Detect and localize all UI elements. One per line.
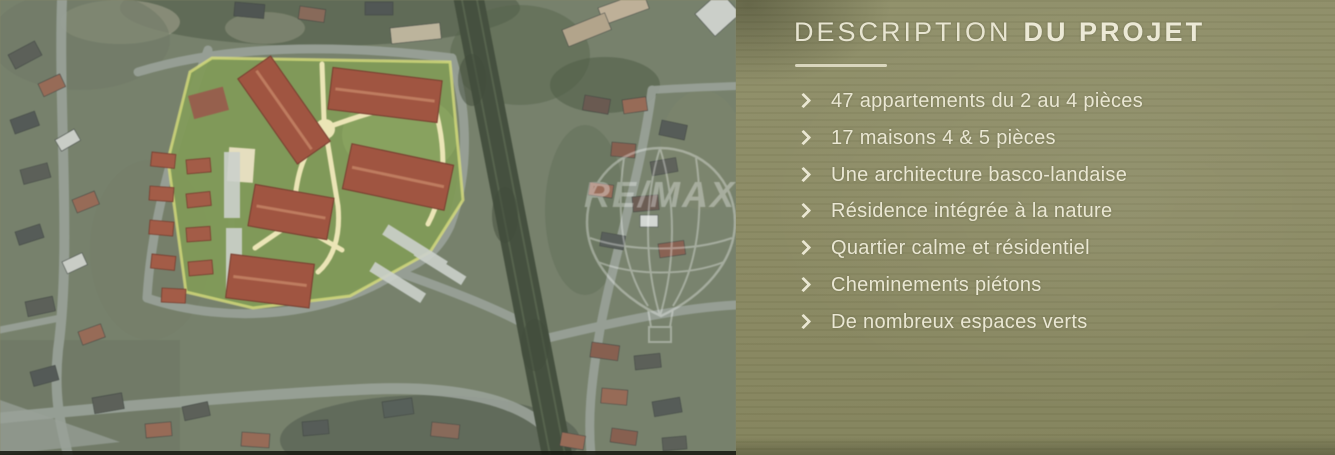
page-title: DESCRIPTIONDU PROJET (794, 18, 1205, 48)
list-item: 17 maisons 4 & 5 pièces (798, 126, 1143, 163)
remax-watermark-text: RE/MAX (584, 174, 736, 215)
chevron-right-icon (798, 163, 831, 180)
title-underline (795, 64, 887, 67)
aerial-map-graphic: RE/MAX (0, 0, 736, 455)
bottom-edge (0, 451, 736, 455)
chevron-right-icon (798, 89, 831, 106)
feature-text: 17 maisons 4 & 5 pièces (831, 126, 1056, 150)
aerial-photo: RE/MAX (0, 0, 736, 455)
list-item: Cheminements piétons (798, 273, 1143, 310)
title-bold: DU PROJET (1024, 17, 1206, 47)
feature-text: Quartier calme et résidentiel (831, 236, 1090, 260)
chevron-right-icon (798, 236, 831, 253)
chevron-right-icon (798, 310, 831, 327)
chevron-right-icon (798, 199, 831, 216)
project-flyer: RE/MAX DESCRIPTIONDU PROJET 47 apparteme… (0, 0, 1335, 455)
title-regular: DESCRIPTION (794, 17, 1012, 47)
chevron-right-icon (798, 126, 831, 143)
list-item: Quartier calme et résidentiel (798, 236, 1143, 273)
list-item: De nombreux espaces verts (798, 310, 1143, 347)
feature-text: 47 appartements du 2 au 4 pièces (831, 89, 1143, 113)
description-panel: DESCRIPTIONDU PROJET 47 appartements du … (736, 0, 1335, 455)
feature-text: Résidence intégrée à la nature (831, 199, 1112, 223)
list-item: 47 appartements du 2 au 4 pièces (798, 89, 1143, 126)
chevron-right-icon (798, 273, 831, 290)
list-item: Une architecture basco-landaise (798, 163, 1143, 200)
feature-text: De nombreux espaces verts (831, 310, 1088, 334)
feature-text: Cheminements piétons (831, 273, 1042, 297)
feature-list: 47 appartements du 2 au 4 pièces 17 mais… (798, 89, 1143, 347)
feature-text: Une architecture basco-landaise (831, 163, 1127, 187)
list-item: Résidence intégrée à la nature (798, 199, 1143, 236)
